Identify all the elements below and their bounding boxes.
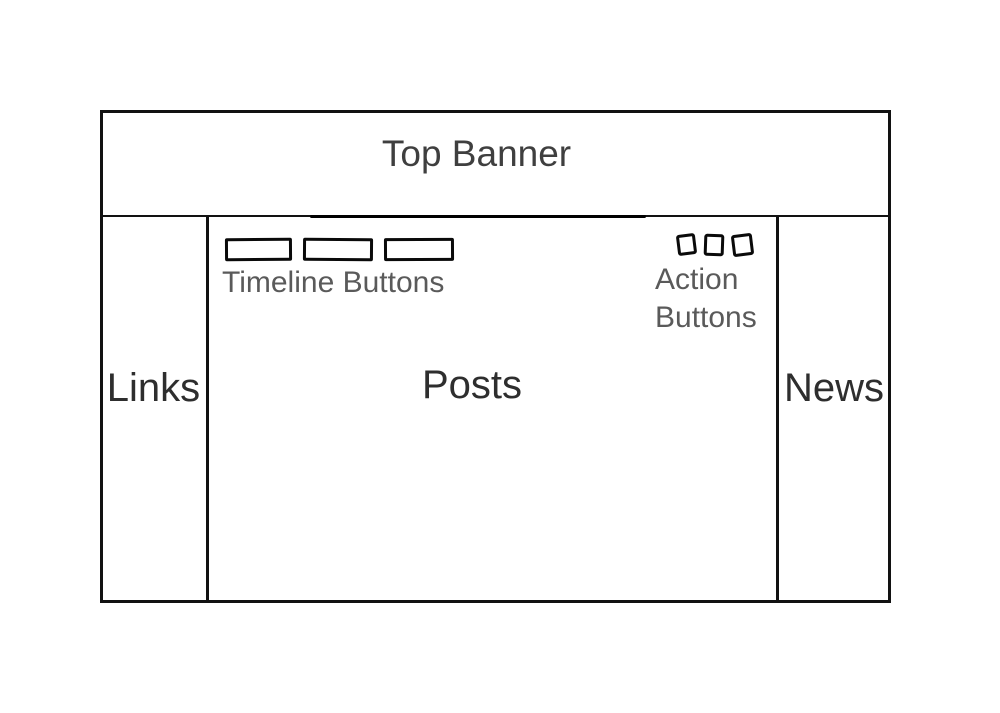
timeline-button[interactable] <box>225 238 292 261</box>
action-button[interactable] <box>704 234 725 257</box>
main-content-region: Timeline Buttons Action Buttons Posts <box>207 217 777 603</box>
top-banner-label: Top Banner <box>382 135 571 172</box>
posts-label: Posts <box>422 363 522 407</box>
wireframe-canvas: Top Banner Links Timeline Buttons Action… <box>0 0 1000 713</box>
timeline-button[interactable] <box>384 238 454 261</box>
timeline-buttons-label: Timeline Buttons <box>222 268 444 298</box>
right-sidebar-region: News <box>777 217 891 603</box>
left-sidebar-region: Links <box>100 217 207 603</box>
timeline-buttons-group <box>225 238 454 261</box>
posts-title-wrap: Posts <box>207 365 737 405</box>
news-label: News <box>784 368 884 603</box>
timeline-button[interactable] <box>303 238 373 261</box>
links-label: Links <box>107 368 200 603</box>
action-buttons-group <box>677 234 753 256</box>
action-button[interactable] <box>676 233 697 256</box>
action-button[interactable] <box>731 233 755 257</box>
action-buttons-label: Action Buttons <box>655 261 767 337</box>
top-banner-region: Top Banner <box>100 110 891 217</box>
